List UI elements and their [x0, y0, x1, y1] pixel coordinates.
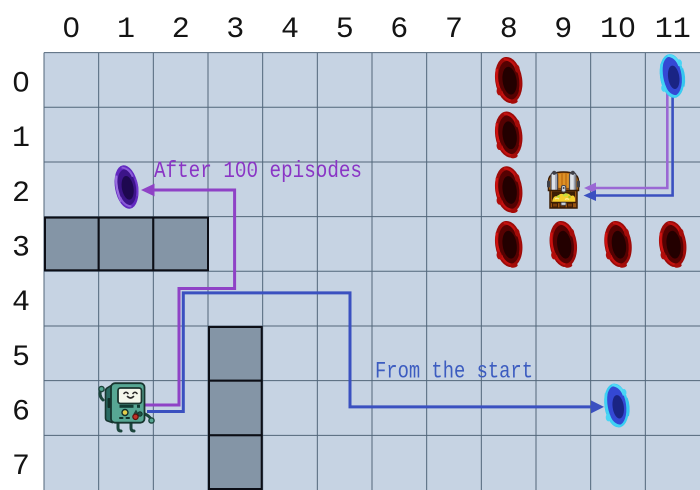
svg-text:3: 3 — [12, 232, 30, 266]
svg-text:3: 3 — [226, 13, 244, 47]
svg-text:5: 5 — [12, 341, 30, 375]
svg-text:8: 8 — [500, 13, 518, 47]
svg-text:1: 1 — [117, 13, 135, 47]
svg-text:4: 4 — [281, 13, 299, 47]
svg-text:6: 6 — [390, 13, 408, 47]
svg-text:1: 1 — [12, 122, 30, 156]
svg-text:4: 4 — [12, 286, 30, 320]
svg-text:7: 7 — [12, 450, 30, 484]
svg-text:5: 5 — [336, 13, 354, 47]
svg-text:After 100 episodes: After 100 episodes — [154, 158, 362, 184]
svg-text:From the start: From the start — [375, 359, 533, 385]
svg-text:10: 10 — [600, 13, 636, 47]
svg-text:2: 2 — [12, 177, 30, 211]
svg-text:9: 9 — [554, 13, 572, 47]
svg-text:6: 6 — [12, 396, 30, 430]
svg-text:2: 2 — [172, 13, 190, 47]
svg-text:7: 7 — [445, 13, 463, 47]
svg-text:11: 11 — [655, 13, 691, 47]
